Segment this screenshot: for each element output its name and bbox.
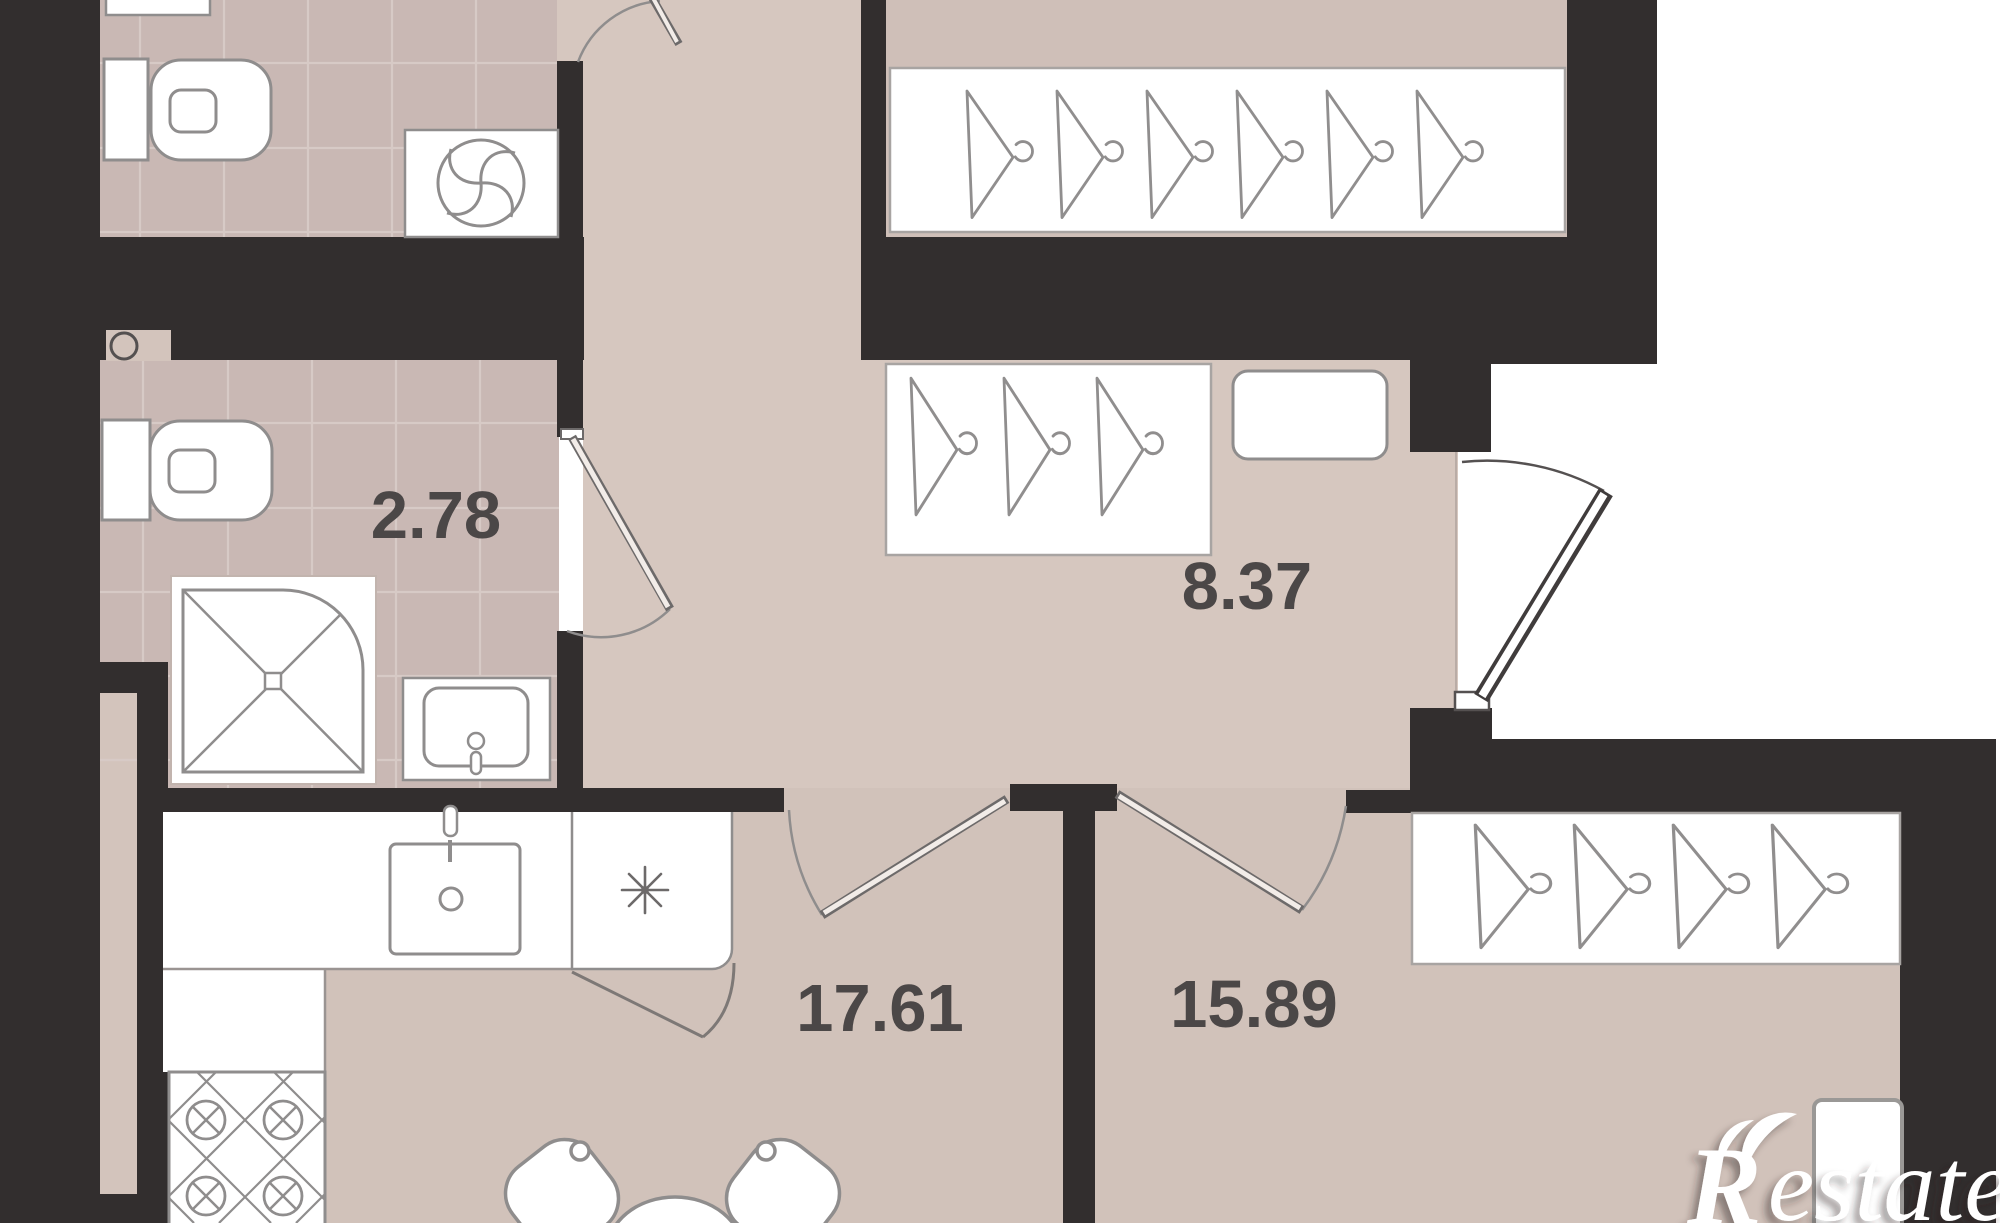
svg-text:8.37: 8.37	[1182, 549, 1312, 624]
svg-text:2.78: 2.78	[371, 478, 501, 553]
svg-text:estate: estate	[1768, 1128, 2000, 1223]
svg-text:15.89: 15.89	[1170, 967, 1338, 1042]
svg-text:17.61: 17.61	[796, 971, 964, 1046]
